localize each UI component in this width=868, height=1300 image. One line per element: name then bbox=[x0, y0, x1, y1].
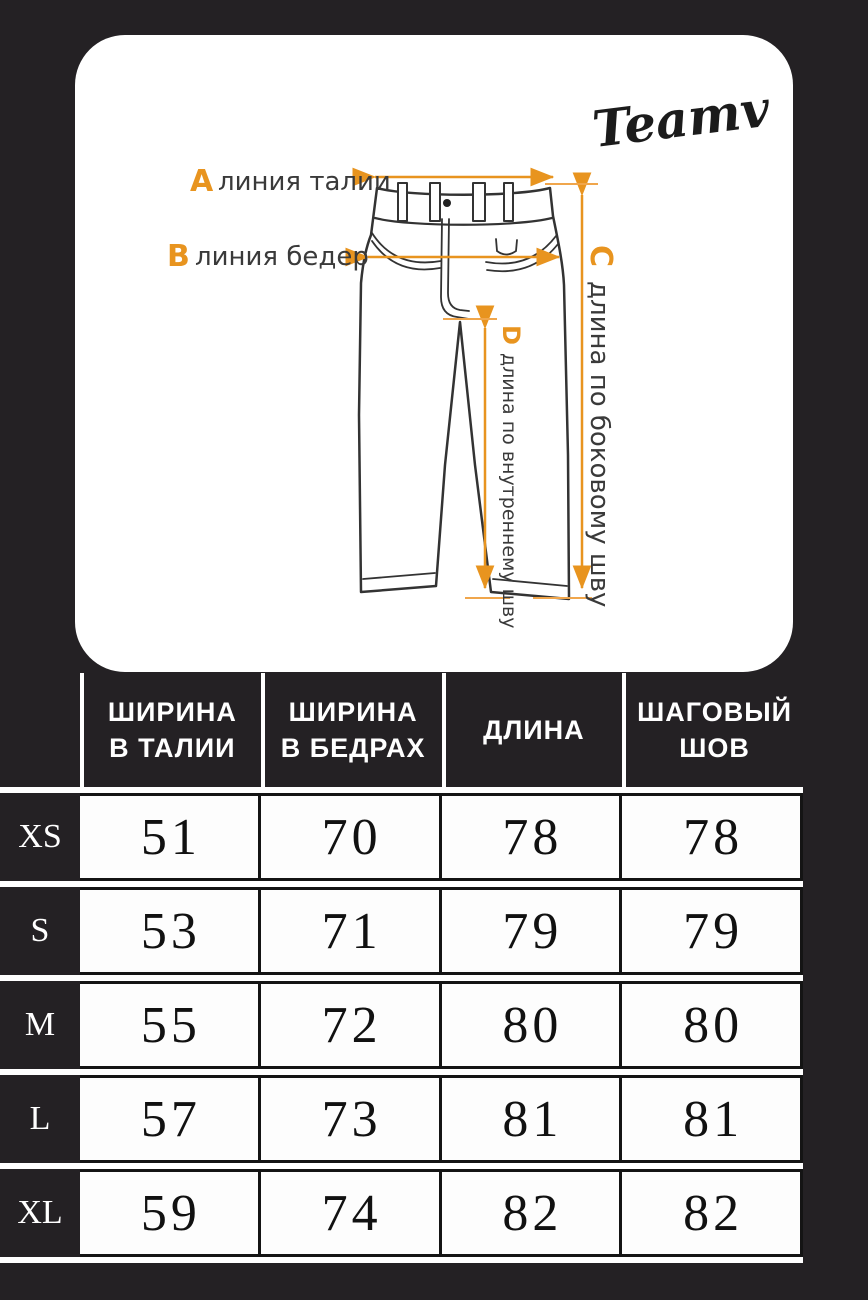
column-header-waist: ШИРИНА В ТАЛИИ bbox=[84, 673, 261, 787]
value-cell: 51 bbox=[80, 793, 261, 881]
row-label: L bbox=[0, 1075, 80, 1163]
value-cell: 59 bbox=[80, 1169, 261, 1257]
value-cell: 81 bbox=[442, 1075, 623, 1163]
page-background: { "page": { "background": "#242124", "ac… bbox=[0, 0, 868, 1300]
table-row: S 53 71 79 79 bbox=[0, 887, 803, 975]
size-diagram-svg: Teamv bbox=[75, 35, 793, 672]
column-header-line: В БЕДРАХ bbox=[281, 730, 426, 766]
dim-c-label: длина по боковому шву bbox=[584, 281, 614, 607]
value-cell: 70 bbox=[261, 793, 442, 881]
jeans-outline bbox=[359, 188, 569, 599]
table-row: XS 51 70 78 78 bbox=[0, 793, 803, 881]
value-cell: 78 bbox=[442, 793, 623, 881]
row-label: XS bbox=[0, 793, 80, 881]
table-header-row: ШИРИНА В ТАЛИИ ШИРИНА В БЕДРАХ ДЛИНА ШАГ… bbox=[0, 673, 803, 787]
dim-c-letter: C bbox=[583, 245, 618, 267]
table-row: L 57 73 81 81 bbox=[0, 1075, 803, 1163]
row-label: XL bbox=[0, 1169, 80, 1257]
value-cell: 53 bbox=[80, 887, 261, 975]
column-header-line: В ТАЛИИ bbox=[109, 730, 235, 766]
column-header-line: ШИРИНА bbox=[289, 694, 418, 730]
dim-a-label: линия талии bbox=[218, 167, 391, 197]
value-cell: 71 bbox=[261, 887, 442, 975]
value-cell: 81 bbox=[622, 1075, 803, 1163]
column-header-inseam: ШАГОВЫЙ ШОВ bbox=[626, 673, 803, 787]
jeans-button bbox=[443, 199, 451, 207]
value-cell: 74 bbox=[261, 1169, 442, 1257]
table-row: XL 59 74 82 82 bbox=[0, 1169, 803, 1257]
column-header-line: ДЛИНА bbox=[483, 712, 585, 748]
value-cell: 79 bbox=[622, 887, 803, 975]
value-cell: 82 bbox=[442, 1169, 623, 1257]
value-cell: 73 bbox=[261, 1075, 442, 1163]
brand-logo: Teamv bbox=[589, 79, 773, 159]
value-cell: 80 bbox=[442, 981, 623, 1069]
column-header-line: ШОВ bbox=[679, 730, 750, 766]
value-cell: 79 bbox=[442, 887, 623, 975]
value-cell: 55 bbox=[80, 981, 261, 1069]
size-table: ШИРИНА В ТАЛИИ ШИРИНА В БЕДРАХ ДЛИНА ШАГ… bbox=[0, 673, 803, 1263]
header-spacer bbox=[0, 673, 80, 787]
column-header-length: ДЛИНА bbox=[446, 673, 623, 787]
column-header-hips: ШИРИНА В БЕДРАХ bbox=[265, 673, 442, 787]
value-cell: 78 bbox=[622, 793, 803, 881]
dim-b-label: линия бедер bbox=[195, 242, 369, 272]
value-cell: 80 bbox=[622, 981, 803, 1069]
measurement-card: Teamv bbox=[75, 35, 793, 672]
row-label: S bbox=[0, 887, 80, 975]
table-row: M 55 72 80 80 bbox=[0, 981, 803, 1069]
column-header-line: ШАГОВЫЙ bbox=[637, 694, 792, 730]
value-cell: 82 bbox=[622, 1169, 803, 1257]
row-gap bbox=[0, 1257, 803, 1263]
value-cell: 72 bbox=[261, 981, 442, 1069]
dim-d-label: длина по внутреннему шву bbox=[498, 353, 520, 628]
column-header-line: ШИРИНА bbox=[108, 694, 237, 730]
dim-b-letter: B bbox=[167, 239, 190, 274]
jeans-drawing bbox=[359, 183, 569, 599]
dim-d-letter: D bbox=[497, 325, 525, 345]
row-label: M bbox=[0, 981, 80, 1069]
dim-a-letter: A bbox=[190, 164, 214, 199]
value-cell: 57 bbox=[80, 1075, 261, 1163]
